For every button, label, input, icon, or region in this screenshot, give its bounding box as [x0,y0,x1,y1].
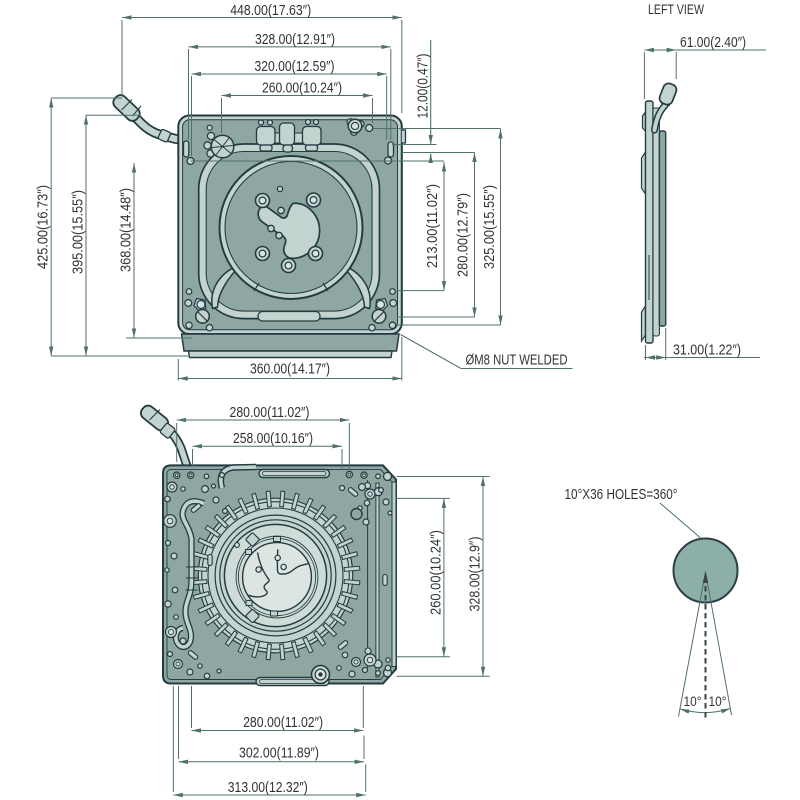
svg-text:10°: 10° [684,694,702,709]
svg-text:328.00(12.91″): 328.00(12.91″) [255,32,335,48]
svg-text:280.00(11.02″): 280.00(11.02″) [230,405,310,421]
svg-text:260.00(10.24″): 260.00(10.24″) [428,530,444,615]
svg-text:320.00(12.59″): 320.00(12.59″) [255,59,335,75]
svg-text:LEFT VIEW: LEFT VIEW [648,2,704,17]
svg-text:258.00(10.16″): 258.00(10.16″) [233,431,313,447]
svg-text:31.00(1.22″): 31.00(1.22″) [673,343,741,359]
svg-text:360.00(14.17″): 360.00(14.17″) [250,362,330,378]
svg-text:425.00(16.73″): 425.00(16.73″) [36,185,52,269]
svg-text:368.00(14.48″): 368.00(14.48″) [119,188,135,272]
svg-text:213.00(11.02″): 213.00(11.02″) [425,184,441,268]
svg-text:ØM8 NUT WELDED: ØM8 NUT WELDED [466,353,568,369]
svg-text:10°X36 HOLES=360°: 10°X36 HOLES=360° [565,487,678,503]
svg-text:280.00(11.02″): 280.00(11.02″) [243,715,323,731]
svg-text:395.00(15.55″): 395.00(15.55″) [70,190,86,274]
svg-text:313.00(12.32″): 313.00(12.32″) [228,780,308,796]
svg-text:302.00(11.89″): 302.00(11.89″) [239,746,319,762]
svg-text:260.00(10.24″): 260.00(10.24″) [262,81,342,97]
svg-text:10°: 10° [709,694,727,709]
svg-text:325.00(15.55″): 325.00(15.55″) [482,185,498,269]
svg-text:328.00(12.9″): 328.00(12.9″) [467,537,483,612]
svg-text:448.00(17.63″): 448.00(17.63″) [230,3,311,19]
svg-text:12.00(0.47″): 12.00(0.47″) [415,54,431,119]
svg-text:280.00(12.79″): 280.00(12.79″) [456,193,472,277]
svg-text:61.00(2.40″): 61.00(2.40″) [680,35,746,51]
